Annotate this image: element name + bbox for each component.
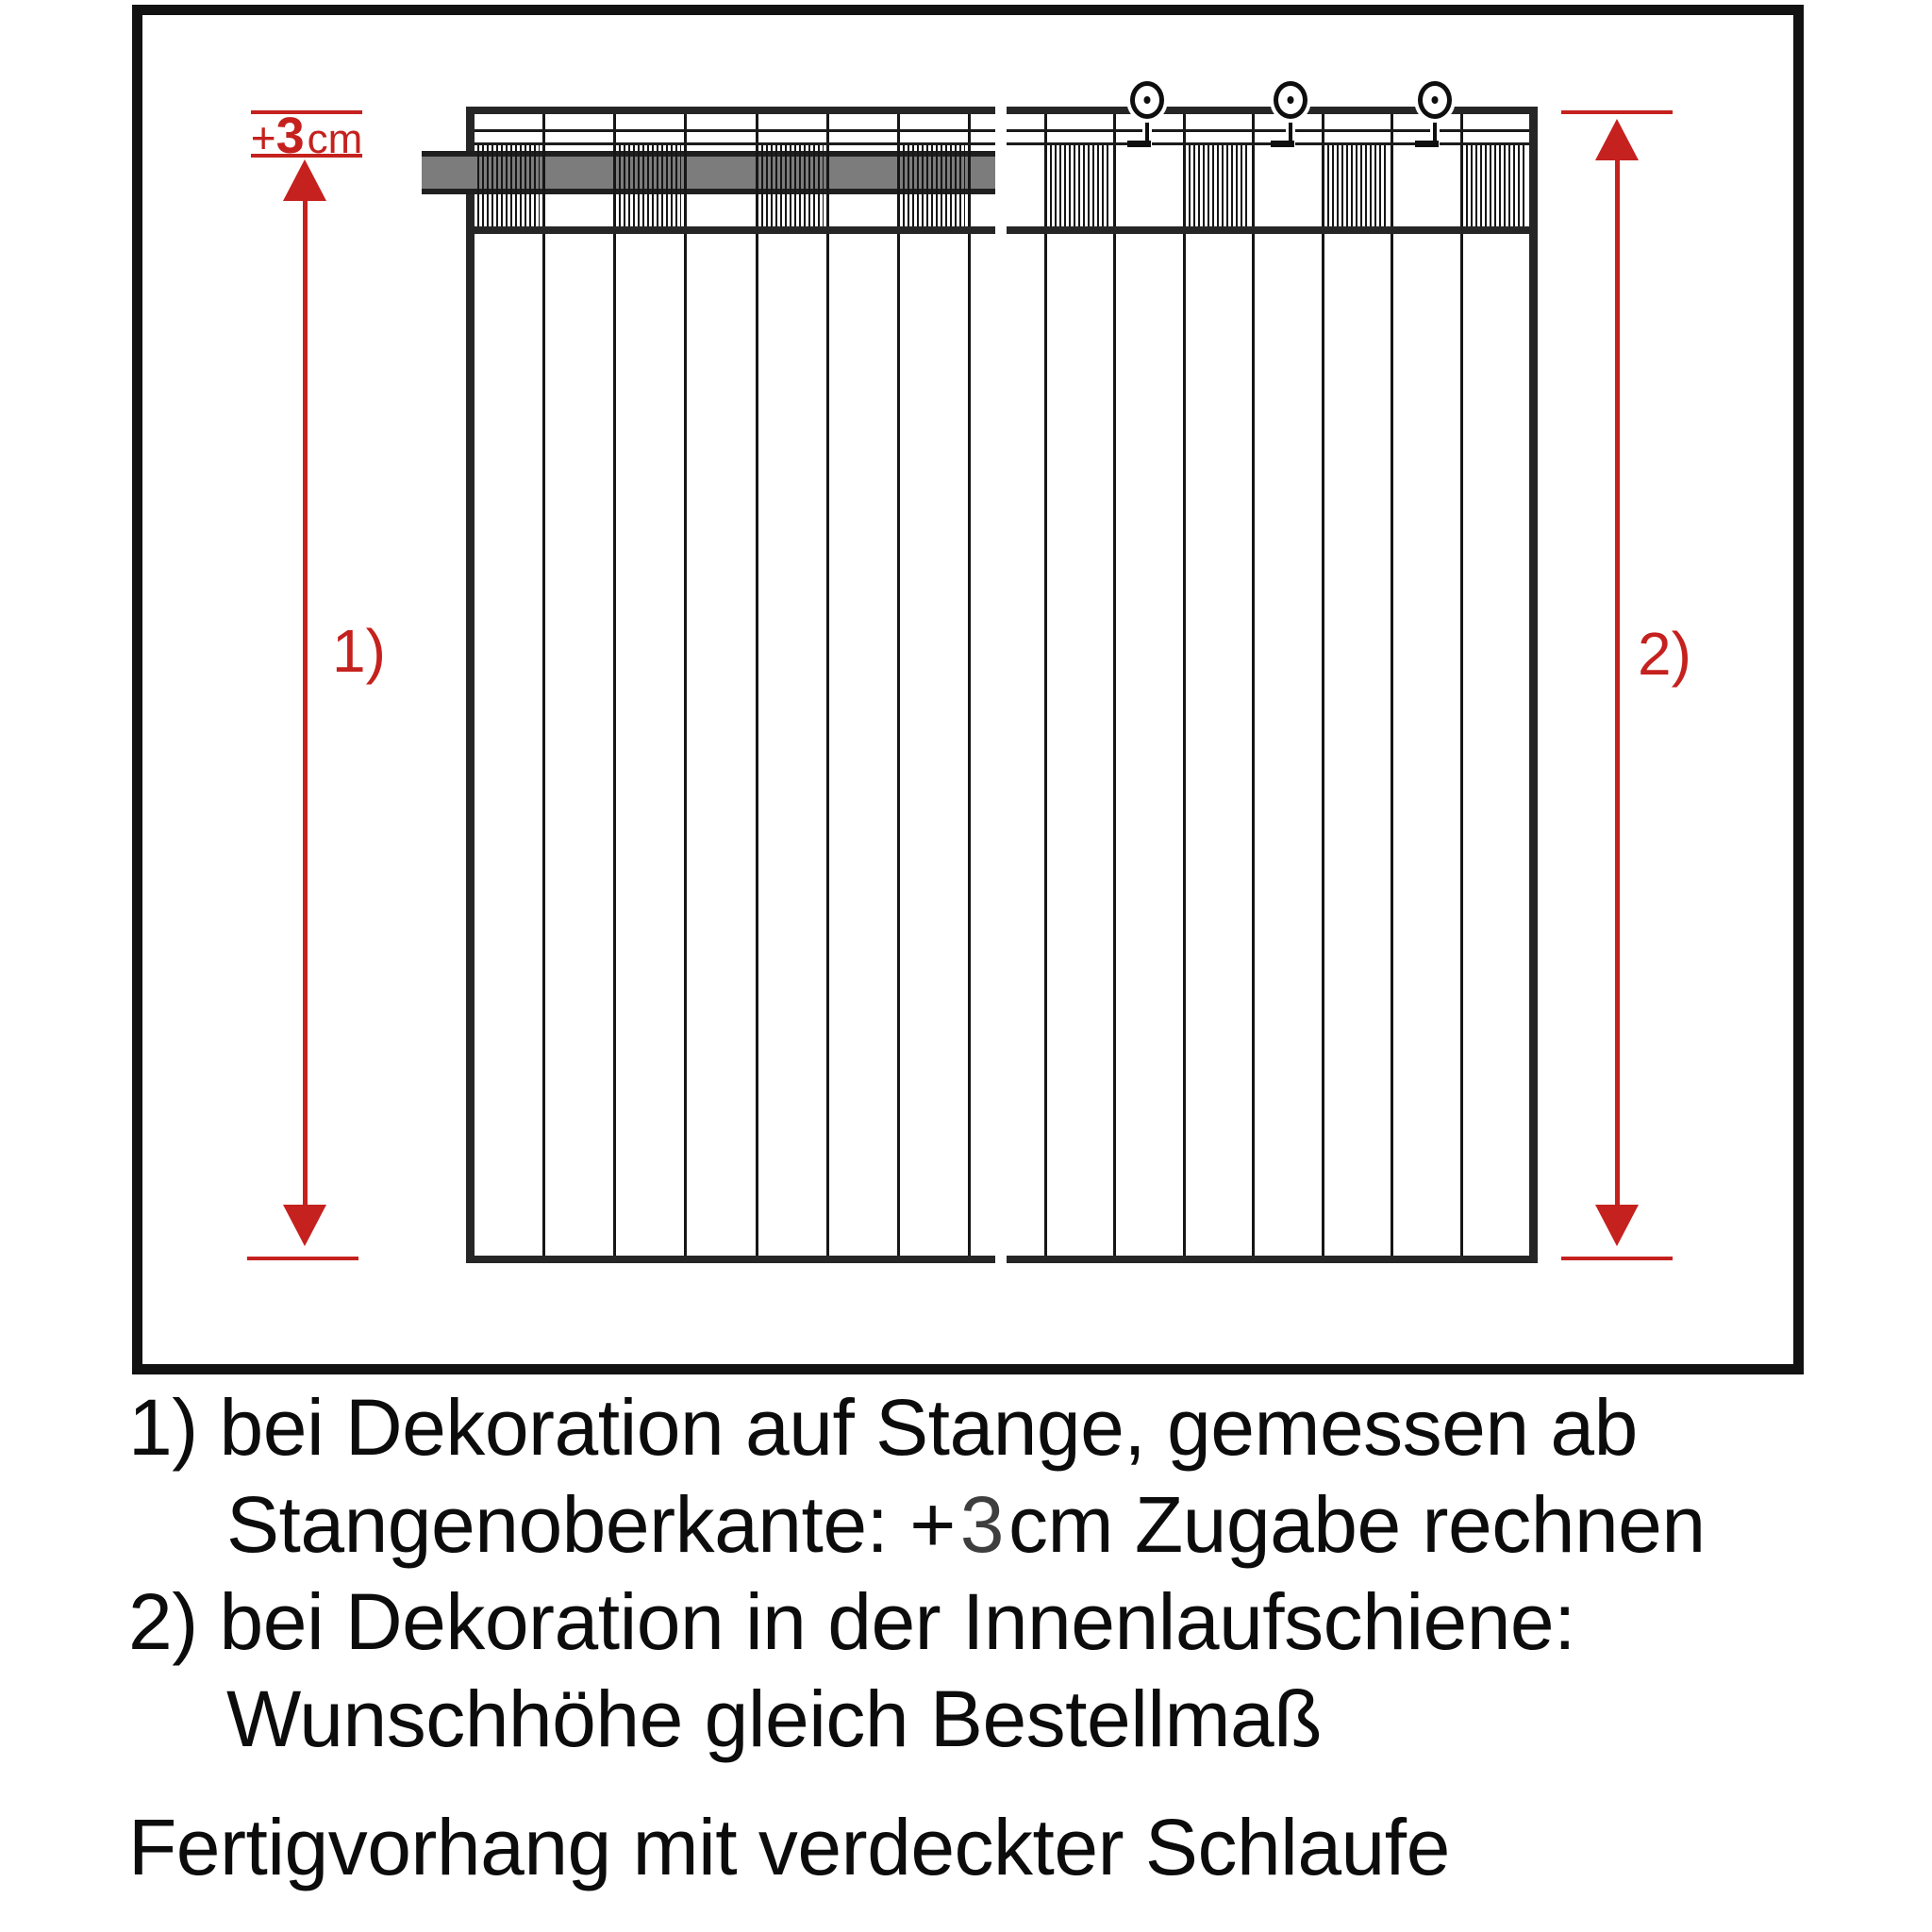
rail-glider-ring-icon [1130,81,1164,119]
measure-arrow-1-down-head [283,1205,326,1246]
curtain-fold-cell [756,114,826,1256]
hidden-loop-hatch [1466,145,1526,228]
caption-line-1: 1) bei Dekoration auf Stange, gemessen a… [128,1379,1706,1476]
curtain-panel-right [1007,107,1538,1263]
header-seam-line [475,129,995,132]
curtain-fold-cell [1252,114,1321,1256]
hidden-loop-hatch [477,145,540,228]
curtain-fold-cell [1113,114,1182,1256]
glider-foot [1127,141,1151,147]
hidden-loop-hatch [1050,145,1110,228]
curtain-fold-cell [684,114,755,1256]
glider-foot [1271,141,1294,147]
curtain-fold-cell [1460,114,1529,1256]
header-bottom-line [475,226,995,234]
curtain-fold-cell [475,114,542,1256]
curtain-fold-cell [1183,114,1252,1256]
tick-curtain-top-right [1561,110,1673,114]
curtain-fold-cell [1322,114,1391,1256]
header-seam-line [475,142,995,145]
glider-foot [1415,141,1439,147]
caption-line-2: Stangenoberkante: +3cm Zugabe rechnen [226,1476,1706,1574]
left-panel-cells [475,114,995,1256]
measure-arrow-1-up-head [283,159,326,201]
measure-arrow-2-down-head [1595,1205,1639,1246]
header-seam-line [1007,142,1529,145]
tick-curtain-bottom-right [1561,1257,1673,1260]
curtain-fold-cell [1007,114,1044,1256]
measure-arrow-2-up-head [1595,119,1639,160]
curtain-fold-cell [897,114,968,1256]
caption: 1) bei Dekoration auf Stange, gemessen a… [128,1379,1706,1896]
curtain-panel-left [466,107,995,1263]
hidden-loop-hatch [619,145,681,228]
curtain-fold-cell [826,114,897,1256]
measure-label-1: 1) [332,621,386,681]
header-bottom-line [1007,226,1529,234]
caption-line-5: Fertigvorhang mit verdeckter Schlaufe [128,1799,1706,1896]
curtain-fold-cell [613,114,684,1256]
measure-label-2: 2) [1638,624,1691,684]
hidden-loop-hatch [903,145,965,228]
hidden-loop-hatch [1327,145,1388,228]
hidden-loop-hatch [1189,145,1249,228]
caption-line-2-prefix: Stangenoberkante: + [226,1480,956,1569]
curtain-fold-cell [1044,114,1113,1256]
measure-arrow-2 [1615,158,1620,1207]
caption-line-3: 2) bei Dekoration in der Innenlaufschien… [128,1574,1706,1671]
right-panel-cells [1007,114,1529,1256]
rail-glider-ring-icon [1418,81,1452,119]
curtain-fold-cell [968,114,995,1256]
hidden-loop-hatch [761,145,824,228]
rail-glider-ring-icon [1274,81,1307,119]
curtain-fold-cell [1391,114,1459,1256]
caption-line-4: Wunschhöhe gleich Bestellmaß [226,1671,1706,1768]
measure-arrow-1 [303,198,308,1207]
caption-line-2-suffix: cm Zugabe rechnen [1008,1480,1706,1569]
curtain-measurement-diagram: +3cm 1) 2) 1) bei Dekoration auf Stange,… [0,0,1932,1932]
caption-line-2-value: 3 [960,1480,1004,1569]
tick-curtain-bottom-left [247,1257,358,1260]
header-seam-line [1007,129,1529,132]
curtain-fold-cell [542,114,613,1256]
tick-rod-top [251,154,362,158]
